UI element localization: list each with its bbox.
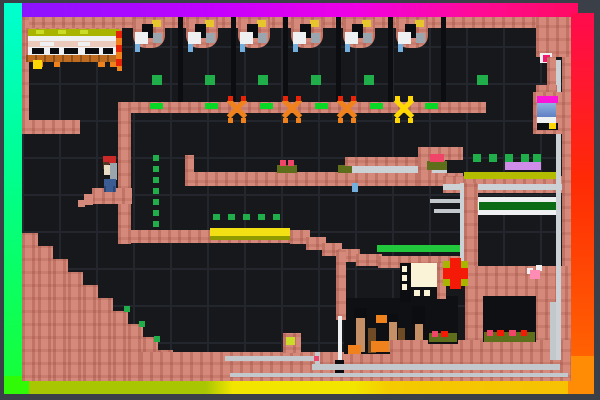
green-dot [533, 154, 541, 162]
flower [441, 331, 448, 337]
fire-pixel [116, 59, 122, 66]
arch-blue-drip [135, 44, 140, 52]
green-block [364, 75, 374, 85]
flame [348, 345, 361, 354]
slope-step [83, 285, 98, 381]
flower-bush-base [427, 161, 447, 170]
green-dot [505, 154, 513, 162]
floor-pipe [312, 364, 560, 370]
arch-blonde-pixel [205, 20, 214, 27]
lavender-bar [505, 162, 541, 170]
arch-white-boot [135, 32, 148, 44]
yellow-bar [210, 228, 290, 236]
arch-blue-drip [293, 44, 298, 52]
pipe-pink-valve [314, 356, 319, 361]
spider-sprite-dot [395, 96, 400, 101]
green-dot [473, 154, 481, 162]
slope-step [68, 272, 83, 381]
green-dash [260, 103, 273, 109]
green-dot [153, 221, 159, 227]
shadow-column [231, 17, 236, 103]
arch-silver [258, 33, 267, 43]
door-dot [402, 284, 407, 290]
mid-wall-pipe [460, 183, 464, 268]
green-dot [153, 166, 159, 172]
train-roof-dash [58, 30, 66, 34]
green-dot [521, 154, 529, 162]
arch-blonde-pixel [362, 20, 371, 27]
green-block [258, 75, 268, 85]
green-dot [154, 336, 160, 342]
slope-step [113, 311, 128, 381]
grass-strip [464, 172, 556, 179]
portal-magenta [537, 96, 558, 103]
arch-blonde-pixel [415, 20, 424, 27]
train-wheel [98, 62, 105, 67]
corner-pipe [550, 302, 556, 360]
green-block [205, 75, 215, 85]
arch-silver [416, 33, 425, 43]
shadow-column [441, 17, 446, 103]
border-bottom [26, 381, 571, 394]
green-block [477, 75, 488, 85]
right-top-block [536, 17, 571, 57]
spider-sprite-dot [351, 96, 356, 101]
border-right [571, 13, 594, 381]
shadow-column [283, 17, 288, 103]
spider-sprite-dot [283, 96, 288, 101]
floor-pipe [230, 373, 568, 377]
shadow-column [336, 17, 341, 103]
border-corner-bottom-right [568, 356, 594, 394]
floor-pipe [225, 356, 317, 361]
door-dot [402, 275, 407, 281]
arch-blue-drip [188, 44, 193, 52]
arch-blue-drip [345, 44, 350, 52]
figure-orange-cap [376, 315, 387, 323]
arch-white-boot [293, 32, 306, 44]
train-window [32, 48, 44, 54]
cross-mark-h [443, 268, 468, 279]
green-dot [153, 199, 159, 205]
green-dot [124, 306, 130, 312]
slope-step [98, 298, 113, 381]
green-dot [228, 214, 235, 220]
fire-pixel [116, 52, 122, 59]
green-dash [205, 103, 218, 109]
shadow-column [178, 17, 183, 103]
train-window [85, 48, 99, 54]
green-dash [315, 103, 328, 109]
yellow-bar-shade [210, 236, 290, 240]
spider-sprite-dot [395, 118, 400, 123]
coin-item [33, 60, 42, 69]
arch-silver [363, 33, 372, 43]
spider-sprite-dot [338, 96, 343, 101]
arch-blue-drip [240, 44, 245, 52]
arch-white-boot [188, 32, 201, 44]
train-roof-dash [36, 30, 44, 34]
green-dot [213, 214, 220, 220]
needle-line [338, 316, 342, 364]
player-ledge-tip [84, 194, 93, 205]
slope-step [38, 246, 53, 381]
player-ledge-tip [78, 200, 85, 207]
fire-pixel [116, 38, 122, 45]
train-window [103, 48, 113, 54]
train-window [50, 48, 59, 54]
sparkle-pink [530, 270, 540, 279]
green-dash [150, 103, 163, 109]
arch-white-boot [398, 32, 411, 44]
arch-silver [206, 33, 215, 43]
green-dot [153, 188, 159, 194]
green-dot [153, 210, 159, 216]
gauge-fill [479, 202, 557, 210]
flower [509, 330, 516, 336]
player-torso [110, 163, 117, 180]
green-dot [273, 214, 280, 220]
hanging-post [336, 250, 346, 320]
flame [371, 341, 389, 352]
train-wheel [54, 62, 60, 67]
player-boots [104, 186, 116, 192]
flower [497, 330, 504, 336]
portal-sky [537, 103, 556, 117]
arch-blonde-pixel [310, 20, 319, 27]
green-dash [425, 103, 438, 109]
slope-step [53, 259, 68, 381]
fire-pixel [117, 66, 122, 71]
spider-sprite-dot [283, 118, 288, 123]
train-roof-dash [80, 30, 88, 34]
portal-yellow-dot [549, 123, 556, 129]
green-dot [243, 214, 250, 220]
figure-hood [412, 306, 425, 325]
train-stripe-patch [78, 42, 90, 46]
shadow-column [388, 17, 393, 103]
berry [280, 160, 286, 166]
door-dot [402, 266, 407, 272]
green-block [311, 75, 321, 85]
arch-silver [153, 33, 162, 43]
border-top [22, 3, 578, 17]
spider-sprite-dot [338, 118, 343, 123]
train-window [64, 48, 78, 54]
game-stage[interactable] [0, 0, 600, 400]
arch-white-boot [240, 32, 253, 44]
flower [521, 330, 527, 336]
flower-pink [430, 154, 444, 162]
blue-drip [352, 183, 358, 192]
flower [432, 331, 438, 337]
cross-corner [460, 278, 468, 286]
green-block [152, 75, 162, 85]
spider-sprite-dot [241, 118, 246, 123]
door-dot [414, 290, 420, 296]
fire-pixel [116, 31, 122, 38]
pillar [118, 102, 131, 244]
border-left [4, 3, 22, 394]
spider-sprite-dot [241, 96, 246, 101]
green-dot [258, 214, 265, 220]
berry [288, 160, 294, 166]
green-dot [489, 154, 497, 162]
green-dash [370, 103, 383, 109]
spider-sprite-dot [228, 118, 233, 123]
mid-platform [185, 172, 347, 186]
spider-sprite-dot [296, 118, 301, 123]
spider-sprite-dot [228, 96, 233, 101]
arch-blue-drip [398, 44, 403, 52]
arch-blonde-pixel [257, 20, 266, 27]
green-dot [153, 155, 159, 161]
flower [487, 330, 493, 336]
spider-sprite-dot [296, 96, 301, 101]
mid-wall [464, 183, 478, 268]
door-dot [424, 290, 430, 296]
chartreuse-item [286, 337, 295, 345]
arch-white-boot [345, 32, 358, 44]
spider-sprite-dot [408, 96, 413, 101]
fire-pixel [116, 45, 122, 52]
berry-bush-base [277, 165, 297, 173]
wall-neck [547, 57, 556, 87]
arch-silver [311, 33, 320, 43]
spider-sprite-dot [351, 118, 356, 123]
slope-step [22, 233, 38, 381]
spider-sprite-dot [408, 118, 413, 123]
green-dot [139, 321, 145, 327]
green-dot [153, 177, 159, 183]
train-stripe-patch [40, 42, 54, 46]
left-ledge [22, 120, 80, 134]
door-panel [411, 263, 437, 287]
arch-blonde-pixel [152, 20, 161, 27]
